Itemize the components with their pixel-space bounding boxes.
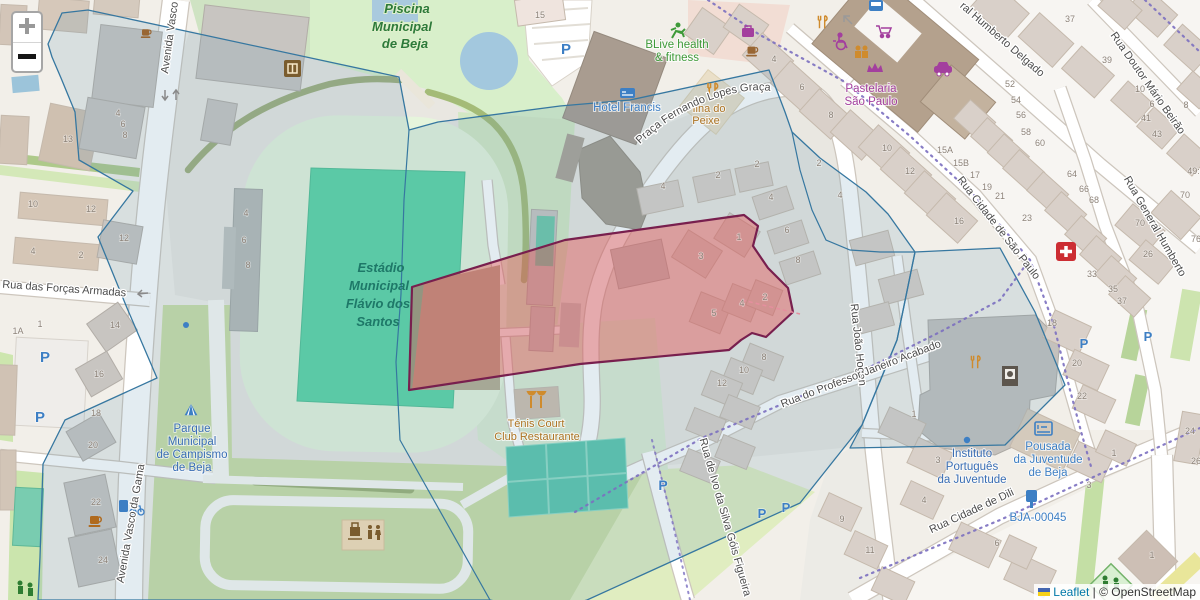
- svg-text:64: 64: [1067, 169, 1077, 179]
- svg-text:Ténis Court: Ténis Court: [508, 418, 565, 430]
- svg-text:Municipal: Municipal: [168, 436, 217, 448]
- svg-text:da Juventude: da Juventude: [1013, 454, 1082, 466]
- svg-text:24: 24: [1185, 426, 1195, 436]
- svg-text:Estádio: Estádio: [358, 260, 405, 275]
- svg-text:3: 3: [935, 455, 940, 465]
- svg-text:P: P: [658, 477, 667, 493]
- svg-text:6: 6: [994, 538, 999, 548]
- svg-text:12: 12: [905, 166, 915, 176]
- svg-text:2: 2: [715, 170, 720, 180]
- svg-text:Municipal: Municipal: [372, 19, 432, 34]
- svg-text:4: 4: [115, 108, 120, 118]
- svg-text:17: 17: [970, 170, 980, 180]
- svg-text:Pastelaria: Pastelaria: [845, 83, 897, 95]
- svg-text:BLive health: BLive health: [645, 39, 708, 51]
- svg-text:19: 19: [982, 182, 992, 192]
- svg-text:18: 18: [1047, 318, 1057, 328]
- svg-text:20: 20: [88, 440, 98, 450]
- svg-text:P: P: [758, 506, 767, 521]
- svg-text:Pousada: Pousada: [1025, 441, 1071, 453]
- svg-text:3: 3: [1086, 480, 1091, 490]
- svg-text:14: 14: [110, 320, 120, 330]
- svg-text:P: P: [35, 409, 45, 426]
- svg-text:6: 6: [799, 82, 804, 92]
- svg-text:4: 4: [768, 192, 773, 202]
- svg-text:8: 8: [828, 110, 833, 120]
- svg-text:Instituto: Instituto: [952, 448, 992, 460]
- svg-text:de Beja: de Beja: [382, 36, 428, 51]
- svg-text:Peixe: Peixe: [692, 115, 720, 127]
- svg-text:P: P: [561, 41, 571, 58]
- svg-text:6: 6: [784, 225, 789, 235]
- svg-text:8: 8: [245, 260, 250, 270]
- svg-text:21: 21: [995, 191, 1005, 201]
- svg-text:13: 13: [63, 134, 73, 144]
- svg-text:39: 39: [1102, 55, 1112, 65]
- svg-text:1: 1: [37, 319, 42, 329]
- svg-text:37: 37: [1117, 296, 1127, 306]
- svg-text:4: 4: [243, 208, 248, 218]
- svg-text:Piscina: Piscina: [384, 1, 430, 16]
- svg-text:de Campismo: de Campismo: [157, 449, 228, 461]
- svg-text:49:4: 49:4: [1187, 166, 1200, 176]
- svg-text:Hotel Francis: Hotel Francis: [593, 102, 661, 114]
- svg-text:2: 2: [816, 158, 821, 168]
- svg-text:Municipal: Municipal: [349, 278, 409, 293]
- svg-text:52: 52: [1005, 79, 1015, 89]
- svg-text:26: 26: [1191, 456, 1200, 466]
- svg-text:P: P: [40, 349, 50, 366]
- svg-text:18: 18: [91, 408, 101, 418]
- svg-text:6: 6: [120, 119, 125, 129]
- svg-text:58: 58: [1021, 127, 1031, 137]
- svg-text:16: 16: [954, 216, 964, 226]
- svg-text:8: 8: [1183, 100, 1188, 110]
- svg-text:15A: 15A: [937, 145, 953, 155]
- svg-text:12: 12: [119, 233, 129, 243]
- svg-text:37: 37: [1065, 14, 1075, 24]
- svg-text:2: 2: [762, 292, 767, 302]
- svg-text:8: 8: [795, 255, 800, 265]
- svg-text:P: P: [782, 500, 791, 515]
- svg-text:Club Restaurante: Club Restaurante: [494, 431, 580, 443]
- svg-text:60: 60: [1035, 138, 1045, 148]
- svg-text:22: 22: [91, 497, 101, 507]
- svg-text:Português: Português: [946, 461, 999, 473]
- svg-text:10: 10: [739, 365, 749, 375]
- svg-text:54: 54: [1011, 95, 1021, 105]
- svg-text:23: 23: [1022, 213, 1032, 223]
- svg-text:10: 10: [28, 199, 38, 209]
- svg-text:11: 11: [865, 545, 874, 555]
- svg-text:33: 33: [1087, 269, 1097, 279]
- svg-text:BJA-00045: BJA-00045: [1010, 512, 1067, 524]
- svg-text:da Juventude: da Juventude: [937, 474, 1006, 486]
- svg-text:1: 1: [736, 232, 741, 242]
- svg-text:P: P: [1080, 336, 1089, 351]
- svg-text:2: 2: [754, 159, 759, 169]
- svg-text:56: 56: [1016, 110, 1026, 120]
- svg-text:12: 12: [717, 378, 727, 388]
- svg-text:São Paulo: São Paulo: [844, 96, 897, 108]
- svg-text:2: 2: [78, 250, 83, 260]
- svg-text:4: 4: [837, 190, 842, 200]
- svg-text:15: 15: [535, 10, 545, 20]
- svg-text:de Beja: de Beja: [172, 462, 212, 474]
- svg-text:4: 4: [921, 495, 926, 505]
- svg-text:& fitness: & fitness: [655, 52, 699, 64]
- svg-text:3: 3: [698, 251, 703, 261]
- svg-text:de Beja: de Beja: [1028, 467, 1068, 479]
- svg-text:10: 10: [1135, 84, 1145, 94]
- svg-text:1A: 1A: [12, 326, 23, 336]
- svg-text:41: 41: [1141, 113, 1151, 123]
- svg-text:1: 1: [1149, 550, 1154, 560]
- svg-text:12: 12: [86, 204, 96, 214]
- svg-text:22: 22: [1077, 391, 1087, 401]
- svg-text:4: 4: [771, 54, 776, 64]
- svg-text:4: 4: [739, 298, 744, 308]
- svg-text:4: 4: [660, 181, 665, 191]
- svg-text:10: 10: [882, 143, 892, 153]
- svg-text:P: P: [1144, 329, 1153, 344]
- svg-text:Flávio dos: Flávio dos: [346, 296, 410, 311]
- svg-text:20: 20: [1072, 358, 1082, 368]
- svg-text:76: 76: [1191, 234, 1200, 244]
- svg-text:68: 68: [1089, 195, 1099, 205]
- svg-text:70: 70: [1180, 190, 1190, 200]
- svg-text:43: 43: [1152, 129, 1162, 139]
- svg-text:15B: 15B: [953, 158, 969, 168]
- svg-text:Parque: Parque: [173, 423, 210, 435]
- svg-text:4: 4: [30, 246, 35, 256]
- svg-text:1: 1: [911, 409, 916, 419]
- svg-text:6: 6: [1149, 99, 1154, 109]
- svg-text:5: 5: [711, 308, 716, 318]
- svg-text:Santos: Santos: [356, 314, 399, 329]
- svg-text:1: 1: [1111, 448, 1116, 458]
- svg-text:35: 35: [1108, 284, 1118, 294]
- svg-text:26: 26: [1143, 249, 1153, 259]
- svg-text:6: 6: [241, 235, 246, 245]
- svg-text:70: 70: [1135, 218, 1145, 228]
- svg-text:8: 8: [761, 352, 766, 362]
- svg-text:9: 9: [839, 514, 844, 524]
- svg-text:66: 66: [1079, 184, 1089, 194]
- svg-text:24: 24: [98, 555, 108, 565]
- svg-text:8: 8: [122, 130, 127, 140]
- svg-text:16: 16: [94, 369, 104, 379]
